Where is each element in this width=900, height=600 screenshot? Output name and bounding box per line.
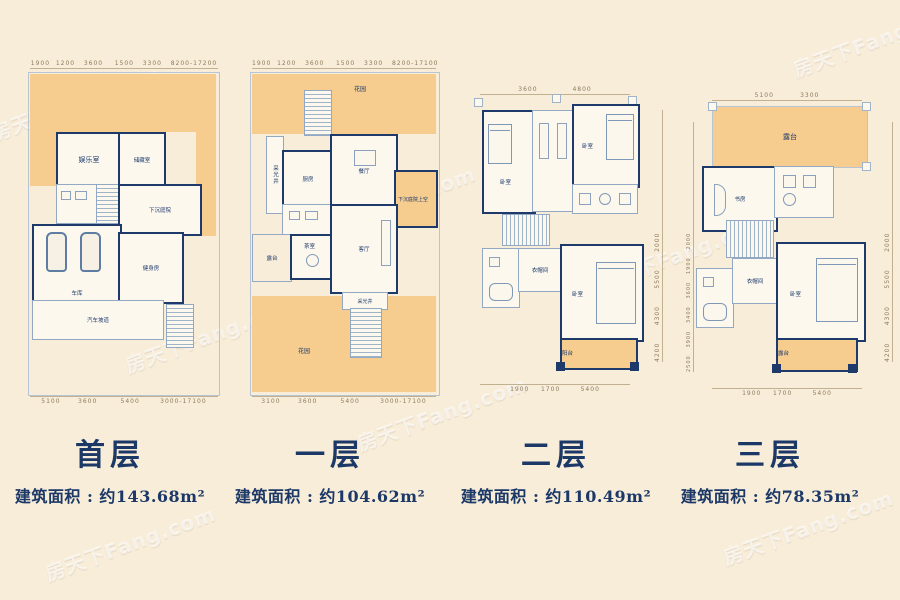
stairs-icon [502, 214, 550, 246]
pillar [848, 364, 857, 373]
room-label: 采光井 [271, 165, 279, 185]
dim-bottom: 1900 1700 5400 [480, 384, 630, 394]
dim-top: 1900 1200 3600 1500 3300 8200-17200 [30, 60, 218, 69]
room-storage: 储藏室 [118, 132, 166, 188]
room-label: 露台 [783, 132, 797, 142]
floorplan-sheet: 房天下Fang.com 房天下Fang.com 房天下Fang.com 房天下F… [0, 0, 900, 600]
corridor [572, 184, 638, 214]
chair-icon [579, 193, 591, 205]
sunken-courtyard-above: 下沉庭院上空 [394, 170, 438, 228]
terrace: 露台 [252, 234, 292, 282]
floor-title: 二层 [446, 430, 666, 474]
yard-area [30, 132, 56, 186]
room-label: 卧室 [790, 290, 801, 298]
caption-first-floor: 一层 建筑面积 : 约104.62m² [220, 430, 440, 507]
floor-title: 首层 [0, 430, 220, 474]
room-dining: 餐厅 [330, 134, 398, 208]
chair-icon [803, 175, 816, 188]
terrace: 露台 [776, 338, 858, 372]
car-ramp: 汽车坡道 [32, 300, 164, 340]
plan-second-floor: 3600 4800 卧室 卧室 衣帽间 [468, 86, 668, 416]
dim-left: 2500 3900 3400 3600 1900 2000 [686, 122, 694, 372]
dim-bottom: 3100 3600 5400 3000-17100 [252, 396, 436, 406]
plan-third-floor: 5100 3300 2500 3900 3400 3600 1900 2000 … [688, 92, 894, 412]
room-bathroom [696, 268, 734, 328]
room-label: 厨房 [302, 175, 313, 183]
stairs-icon [166, 304, 194, 348]
floor-title: 一层 [220, 430, 440, 474]
room-bedroom: 卧室 [776, 242, 866, 342]
room-closet: 衣帽间 [732, 258, 778, 304]
pillar [862, 162, 871, 171]
table-icon [354, 150, 376, 166]
hallway [532, 110, 574, 212]
balcony: 阳台 [560, 338, 638, 370]
room-bedroom: 卧室 [482, 110, 536, 214]
pillar [474, 98, 483, 107]
room-label: 衣帽间 [532, 266, 549, 274]
table-icon [783, 193, 796, 206]
stairs-icon [350, 308, 382, 358]
garden-area [252, 296, 436, 392]
garden-area [252, 74, 436, 134]
room-closet: 衣帽间 [518, 248, 562, 292]
room-label: 采光井 [357, 298, 372, 305]
dim-top: 1900 1200 3600 1500 3300 8200-17100 [252, 60, 436, 69]
room-label: 衣帽间 [747, 277, 764, 285]
room-label: 露台 [778, 351, 789, 357]
bed-icon [816, 258, 858, 322]
desk-icon [714, 184, 726, 216]
pillar [772, 364, 781, 373]
plan-ground-floor: 1900 1200 3600 1500 3300 8200-17200 娱乐室 … [24, 58, 224, 408]
toilet-icon [61, 191, 71, 200]
yard-area [30, 74, 216, 132]
toilet-icon [703, 277, 714, 287]
room-label: 卧室 [572, 290, 583, 298]
roof-terrace: 露台 [712, 106, 868, 168]
table-icon [599, 193, 611, 205]
sink-icon [75, 191, 87, 200]
floor-area: 建筑面积 : 约110.49m² [446, 483, 666, 507]
room-entertainment: 娱乐室 [56, 132, 122, 188]
dim-bottom: 1900 1700 5400 [712, 388, 862, 398]
dim-right: 4200 4300 5500 2000 [884, 122, 893, 362]
floor-area: 建筑面积 : 约78.35m² [660, 483, 880, 507]
corridor [774, 166, 834, 218]
room-gym: 健身房 [118, 232, 184, 304]
chair-icon [783, 175, 796, 188]
wardrobe-icon [539, 123, 549, 159]
floor-title: 三层 [660, 430, 880, 474]
room-label: 健身房 [143, 264, 160, 272]
pillar [862, 102, 871, 111]
sofa-icon [381, 220, 391, 266]
room-sunken-courtyard: 下沉庭院 [118, 184, 202, 236]
dim-top: 5100 3300 [712, 92, 862, 101]
room-label: 车库 [71, 289, 82, 297]
room-label: 花园 [298, 346, 310, 355]
pillar [552, 94, 561, 103]
room-label: 花园 [354, 84, 366, 93]
stairs-icon [304, 90, 332, 136]
wardrobe-icon [557, 123, 567, 159]
room-label: 茶室 [304, 242, 315, 250]
plan-first-floor: 1900 1200 3600 1500 3300 8200-17100 花园 花… [246, 58, 442, 408]
room-tea: 茶室 [290, 234, 334, 280]
room-bedroom: 卧室 [572, 104, 640, 188]
stairs-icon [726, 220, 774, 258]
room-label: 下沉庭院 [149, 206, 171, 214]
stairs-icon [96, 184, 120, 224]
pillar [708, 102, 717, 111]
room-label: 娱乐室 [79, 155, 100, 165]
floor-area: 建筑面积 : 约104.62m² [220, 483, 440, 507]
room-living: 客厅 [330, 204, 398, 294]
table-icon [306, 254, 319, 267]
car-icon [46, 232, 67, 272]
caption-second-floor: 二层 建筑面积 : 约110.49m² [446, 430, 666, 507]
room-label: 储藏室 [134, 156, 151, 164]
room-label: 客厅 [358, 245, 369, 253]
bed-icon [488, 124, 512, 164]
bathtub-icon [489, 283, 513, 301]
room-label: 卧室 [500, 178, 511, 186]
bed-icon [596, 262, 636, 324]
watermark: 房天下Fang.com [40, 498, 219, 587]
car-icon [80, 232, 101, 272]
caption-third-floor: 三层 建筑面积 : 约78.35m² [660, 430, 880, 507]
bathtub-icon [703, 303, 727, 321]
watermark: 房天下Fang.com [788, 0, 900, 83]
dim-right: 4200 4300 5500 2000 [654, 110, 663, 362]
toilet-icon [489, 257, 500, 267]
room-bathroom [482, 248, 520, 308]
room-label: 卧室 [582, 142, 593, 150]
toilet-icon [289, 211, 300, 220]
bed-icon [606, 114, 634, 160]
dim-bottom: 5100 3600 5400 3000-17100 [30, 396, 218, 406]
sink-icon [305, 211, 318, 220]
pillar [630, 362, 639, 371]
room-label: 书房 [734, 195, 745, 203]
caption-ground-floor: 首层 建筑面积 : 约143.68m² [0, 430, 220, 507]
room-label: 汽车坡道 [87, 316, 109, 324]
room-label: 阳台 [562, 351, 573, 357]
chair-icon [619, 193, 631, 205]
room-label: 露台 [266, 254, 277, 262]
room-bathroom [56, 184, 98, 224]
room-label: 下沉庭院上空 [398, 196, 428, 203]
room-garage: 车库 [32, 224, 122, 304]
room-bedroom: 卧室 [560, 244, 644, 342]
room-bathroom [282, 204, 332, 236]
room-label: 餐厅 [358, 167, 369, 175]
room-kitchen: 厨房 [282, 150, 334, 208]
floor-area: 建筑面积 : 约143.68m² [0, 483, 220, 507]
pillar [556, 362, 565, 371]
